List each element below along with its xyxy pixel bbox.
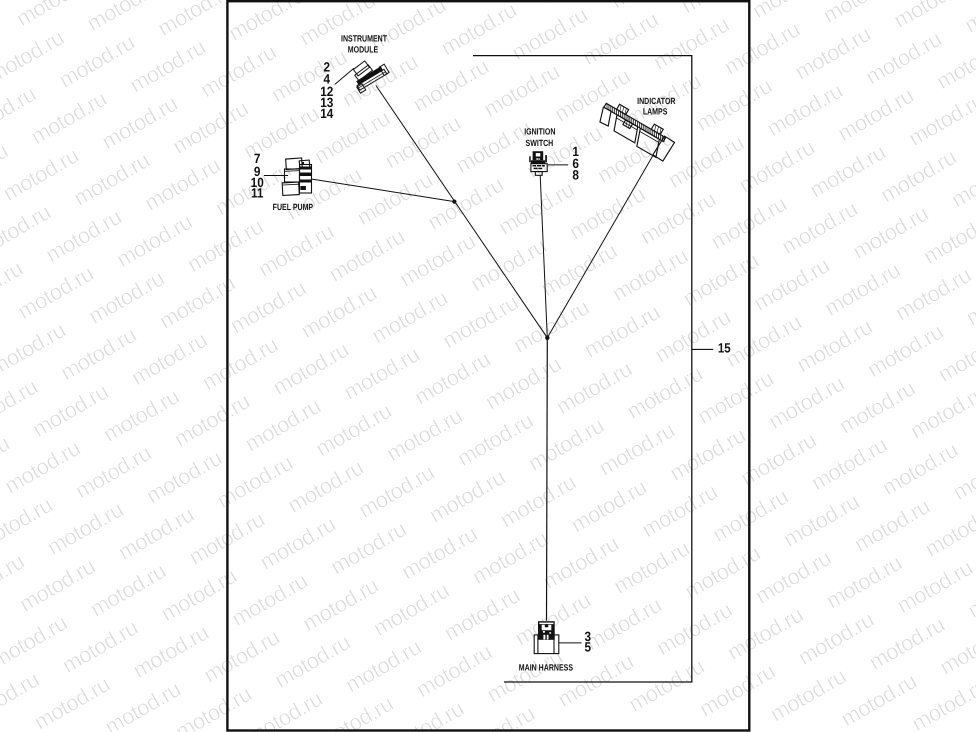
svg-text:motod.ru: motod.ru [865,612,949,675]
svg-text:motod.ru: motod.ru [805,139,889,202]
svg-text:motod.ru: motod.ru [649,12,733,75]
svg-text:motod.ru: motod.ru [140,152,224,215]
svg-text:motod.ru: motod.ru [97,91,181,154]
svg-text:motod.ru: motod.ru [354,460,438,523]
svg-text:LAMPS: LAMPS [643,106,668,116]
svg-text:14: 14 [320,106,334,121]
svg-text:motod.ru: motod.ru [863,319,947,382]
svg-text:motod.ru: motod.ru [412,639,496,702]
svg-text:motod.ru: motod.ru [56,322,140,385]
svg-text:motod.ru: motod.ru [437,0,521,60]
svg-text:motod.ru: motod.ru [451,115,535,178]
svg-text:motod.ru: motod.ru [142,445,226,508]
svg-text:motod.ru: motod.ru [835,376,919,439]
svg-text:motod.ru: motod.ru [298,573,382,636]
svg-text:MAIN HARNESS: MAIN HARNESS [519,662,573,672]
svg-text:motod.ru: motod.ru [242,686,326,732]
svg-text:motod.ru: motod.ru [539,531,623,594]
svg-text:motod.ru: motod.ru [494,177,578,240]
svg-text:motod.ru: motod.ru [479,59,563,122]
svg-text:motod.ru: motod.ru [509,295,593,358]
svg-text:motod.ru: motod.ru [171,681,255,732]
svg-text:motod.ru: motod.ru [254,219,338,282]
svg-text:motod.ru: motod.ru [893,555,976,618]
svg-text:motod.ru: motod.ru [168,96,252,159]
svg-text:motod.ru: motod.ru [395,228,479,291]
svg-text:motod.ru: motod.ru [0,143,83,206]
svg-text:motod.ru: motod.ru [578,7,662,70]
svg-text:motod.ru: motod.ru [283,455,367,518]
svg-text:motod.ru: motod.ru [693,366,777,429]
svg-text:motod.ru: motod.ru [227,568,311,631]
svg-text:INSTRUMENT: INSTRUMENT [341,33,387,43]
svg-text:8: 8 [572,168,579,183]
svg-text:motod.ru: motod.ru [593,125,677,188]
svg-text:motod.ru: motod.ru [581,592,665,655]
svg-text:5: 5 [585,640,592,655]
svg-text:motod.ru: motod.ru [0,317,70,380]
svg-text:motod.ru: motod.ru [848,201,932,264]
svg-text:motod.ru: motod.ru [794,607,878,670]
svg-text:motod.ru: motod.ru [224,0,308,46]
svg-text:motod.ru: motod.ru [41,204,125,267]
svg-text:SWITCH: SWITCH [526,138,554,148]
svg-text:motod.ru: motod.ru [609,536,693,599]
svg-text:motod.ru: motod.ru [652,597,736,660]
svg-text:motod.ru: motod.ru [311,398,395,461]
svg-text:motod.ru: motod.ru [269,337,353,400]
svg-text:motod.ru: motod.ru [71,440,155,503]
svg-text:motod.ru: motod.ru [0,610,71,673]
svg-text:motod.ru: motod.ru [692,73,776,136]
svg-text:motod.ru: motod.ru [665,422,749,485]
svg-text:motod.ru: motod.ru [552,356,636,419]
svg-text:motod.ru: motod.ru [313,691,397,732]
svg-text:motod.ru: motod.ru [270,629,354,692]
svg-text:motod.ru: motod.ru [904,88,976,151]
svg-text:motod.ru: motod.ru [891,262,975,325]
svg-text:motod.ru: motod.ru [664,130,748,193]
svg-text:motod.ru: motod.ru [410,346,494,409]
svg-text:motod.ru: motod.ru [125,34,209,97]
svg-text:motod.ru: motod.ru [28,379,112,442]
svg-text:motod.ru: motod.ru [226,275,310,338]
svg-text:motod.ru: motod.ru [99,384,183,447]
svg-text:motod.ru: motod.ru [453,408,537,471]
svg-text:motod.ru: motod.ru [170,388,254,451]
svg-text:motod.ru: motod.ru [723,602,807,665]
svg-text:motod.ru: motod.ru [537,238,621,301]
svg-text:motod.ru: motod.ru [84,266,168,329]
svg-text:motod.ru: motod.ru [30,671,114,732]
svg-text:motod.ru: motod.ru [721,309,805,372]
svg-text:motod.ru: motod.ru [749,253,833,316]
svg-text:motod.ru: motod.ru [55,30,139,93]
svg-text:motod.ru: motod.ru [637,479,721,542]
svg-text:15: 15 [718,340,731,355]
svg-text:motod.ru: motod.ru [409,54,493,117]
svg-text:motod.ru: motod.ru [338,49,422,112]
svg-text:motod.ru: motod.ru [423,172,507,235]
svg-text:motod.ru: motod.ru [779,489,863,552]
svg-text:motod.ru: motod.ru [833,83,917,146]
svg-text:motod.ru: motod.ru [341,634,425,697]
svg-text:motod.ru: motod.ru [381,110,465,173]
svg-text:motod.ru: motod.ru [86,558,170,621]
svg-text:motod.ru: motod.ru [553,649,637,712]
svg-text:MODULE: MODULE [348,44,378,54]
svg-text:motod.ru: motod.ru [861,26,945,89]
svg-text:motod.ru: motod.ru [15,553,99,616]
svg-text:motod.ru: motod.ru [820,257,904,320]
svg-text:motod.ru: motod.ru [397,521,481,584]
svg-text:motod.ru: motod.ru [651,304,735,367]
svg-text:motod.ru: motod.ru [267,44,351,107]
svg-text:motod.ru: motod.ru [326,516,410,579]
svg-text:motod.ru: motod.ru [27,86,111,149]
svg-text:motod.ru: motod.ru [876,144,960,207]
svg-text:motod.ru: motod.ru [524,413,608,476]
svg-text:motod.ru: motod.ru [129,620,213,683]
svg-text:motod.ru: motod.ru [127,327,211,390]
svg-text:motod.ru: motod.ru [496,469,580,532]
svg-text:motod.ru: motod.ru [822,550,906,613]
svg-text:motod.ru: motod.ru [213,450,297,513]
svg-text:motod.ru: motod.ru [282,162,366,225]
svg-text:motod.ru: motod.ru [367,285,451,348]
svg-text:motod.ru: motod.ru [353,167,437,230]
svg-text:motod.ru: motod.ru [468,526,552,589]
svg-text:motod.ru: motod.ru [735,135,819,198]
svg-text:motod.ru: motod.ru [297,280,381,343]
svg-text:motod.ru: motod.ru [580,300,664,363]
svg-text:motod.ru: motod.ru [878,437,962,500]
svg-text:motod.ru: motod.ru [792,314,876,377]
svg-text:motod.ru: motod.ru [255,511,339,574]
svg-text:motod.ru: motod.ru [239,101,323,164]
svg-text:motod.ru: motod.ru [636,186,720,249]
svg-text:motod.ru: motod.ru [567,474,651,537]
svg-text:motod.ru: motod.ru [114,502,198,565]
svg-text:motod.ru: motod.ru [438,290,522,353]
svg-text:motod.ru: motod.ru [466,233,550,296]
svg-text:motod.ru: motod.ru [960,0,976,38]
svg-text:motod.ru: motod.ru [837,668,921,731]
svg-text:FUEL PUMP: FUEL PUMP [273,202,313,212]
svg-text:motod.ru: motod.ru [69,148,153,211]
svg-text:motod.ru: motod.ru [440,583,524,646]
svg-text:motod.ru: motod.ru [58,615,142,678]
svg-text:motod.ru: motod.ru [595,418,679,481]
svg-text:motod.ru: motod.ru [198,332,282,395]
svg-text:motod.ru: motod.ru [199,625,283,688]
svg-text:motod.ru: motod.ru [764,371,848,434]
svg-text:IGNITION: IGNITION [524,127,555,137]
svg-text:motod.ru: motod.ru [766,663,850,726]
svg-text:motod.ru: motod.ru [906,380,976,443]
svg-text:motod.ru: motod.ru [720,17,804,80]
svg-text:motod.ru: motod.ru [325,224,409,287]
svg-text:motod.ru: motod.ru [907,673,976,732]
svg-text:motod.ru: motod.ru [0,435,84,498]
svg-text:motod.ru: motod.ru [481,351,565,414]
svg-text:motod.ru: motod.ru [43,497,127,560]
svg-text:motod.ru: motod.ru [369,578,453,641]
svg-text:motod.ru: motod.ru [13,261,97,324]
svg-text:motod.ru: motod.ru [695,659,779,722]
svg-text:INDICATOR: INDICATOR [637,96,676,106]
svg-text:motod.ru: motod.ru [680,540,764,603]
svg-text:motod.ru: motod.ru [807,432,891,495]
svg-text:motod.ru: motod.ru [763,78,847,141]
svg-text:motod.ru: motod.ru [196,39,280,102]
svg-text:motod.ru: motod.ru [112,209,196,272]
svg-text:motod.ru: motod.ru [850,494,934,557]
svg-text:motod.ru: motod.ru [183,214,267,277]
svg-text:motod.ru: motod.ru [382,403,466,466]
svg-text:motod.ru: motod.ru [777,196,861,259]
svg-text:motod.ru: motod.ru [241,393,325,456]
svg-text:motod.ru: motod.ru [425,464,509,527]
svg-text:motod.ru: motod.ru [339,342,423,405]
svg-text:motod.ru: motod.ru [608,243,692,306]
svg-text:motod.ru: motod.ru [623,361,707,424]
svg-text:motod.ru: motod.ru [751,545,835,608]
svg-text:11: 11 [251,186,264,201]
svg-text:motod.ru: motod.ru [624,654,708,717]
svg-text:motod.ru: motod.ru [791,21,875,84]
